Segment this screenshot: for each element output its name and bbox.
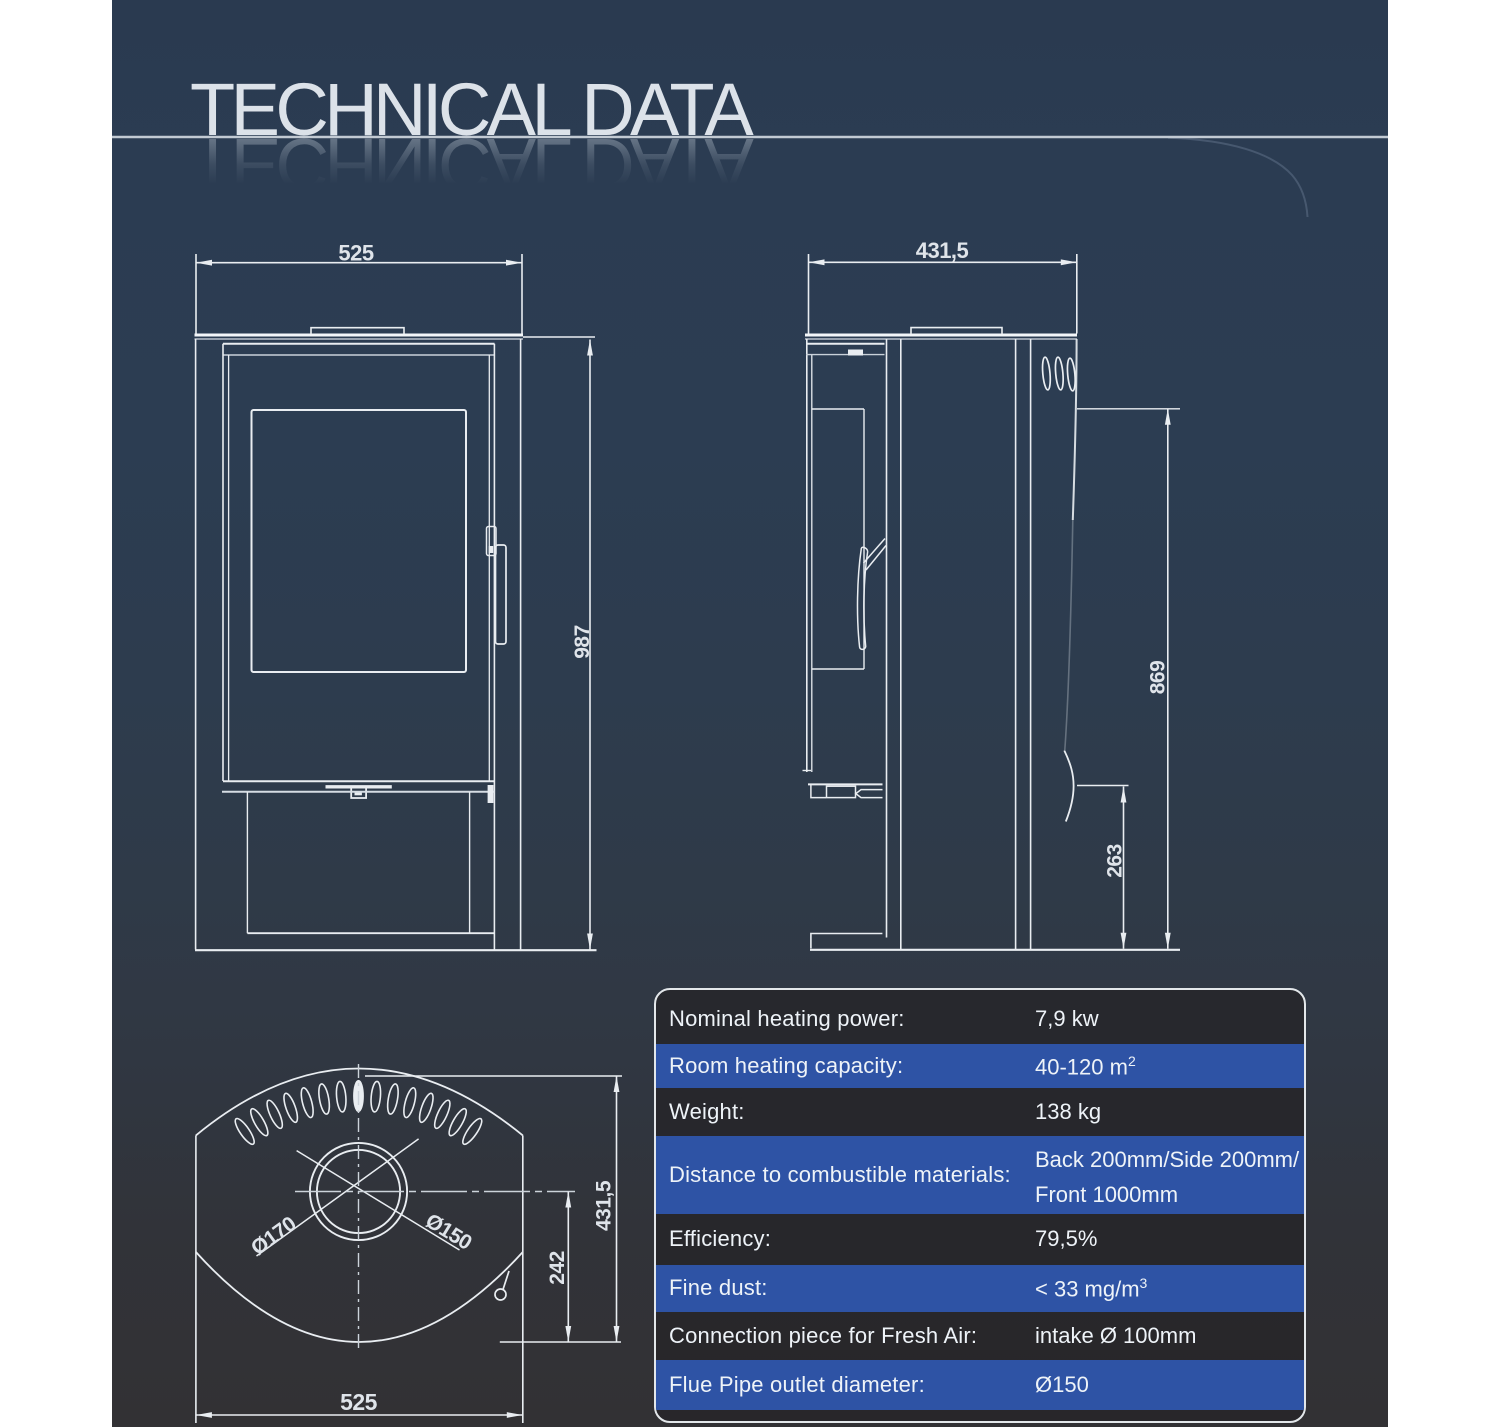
svg-text:869: 869 <box>1147 661 1170 695</box>
svg-text:525: 525 <box>340 1389 378 1415</box>
svg-text:Ø150: Ø150 <box>421 1209 475 1254</box>
svg-text:987: 987 <box>571 625 594 659</box>
svg-text:525: 525 <box>338 241 373 266</box>
svg-text:431,5: 431,5 <box>916 238 969 263</box>
svg-text:431,5: 431,5 <box>593 1180 616 1231</box>
svg-text:242: 242 <box>546 1251 569 1285</box>
svg-text:Ø170: Ø170 <box>247 1212 300 1260</box>
svg-text:TECHNICAL DATA: TECHNICAL DATA <box>190 123 754 206</box>
svg-text:263: 263 <box>1104 844 1127 878</box>
